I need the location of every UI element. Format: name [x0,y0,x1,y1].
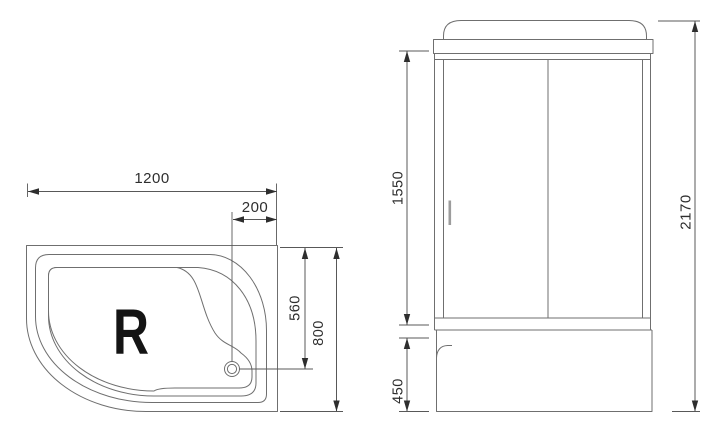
base-panel [437,330,653,412]
shower-cabin-technical-drawing: 1200 200 560 800 R [0,0,720,437]
dim-label-total-height: 2170 [678,194,695,229]
dim-label-base-height: 450 [391,378,407,404]
dim-label-width: 1200 [134,170,169,187]
top-frame-bar [434,40,654,54]
tray-top-view: 1200 200 560 800 R [27,170,344,412]
drawing-canvas: 1200 200 560 800 R [0,0,720,437]
dim-label-drain-axis: 560 [288,295,304,321]
dim-label-depth: 800 [311,320,327,346]
dim-label-drain-offset: 200 [242,199,269,216]
cabin-front-view: 1550 450 2170 [391,21,701,412]
door-handle [449,201,452,226]
base-apron-curve [437,346,453,359]
roof-dome [444,21,647,40]
orientation-label: R [113,296,149,368]
drain-circle-inner [227,364,236,373]
dim-label-door-height: 1550 [391,171,407,205]
